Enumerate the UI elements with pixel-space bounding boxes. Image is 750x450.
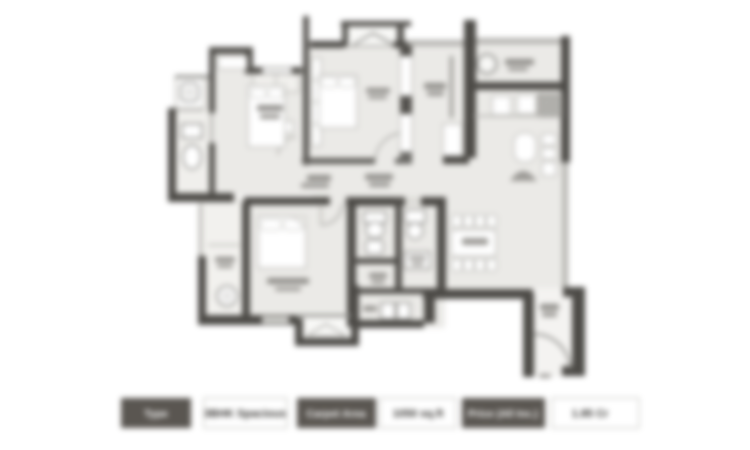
svg-text:1050 sq.ft: 1050 sq.ft [393, 408, 444, 420]
svg-text:Carpet Area: Carpet Area [306, 408, 365, 420]
svg-text:3BHK Spacious: 3BHK Spacious [204, 408, 286, 420]
svg-text:Price (All Inc.): Price (All Inc.) [468, 408, 538, 420]
svg-text:Type: Type [144, 408, 168, 420]
svg-text:1.85 Cr: 1.85 Cr [572, 408, 609, 420]
